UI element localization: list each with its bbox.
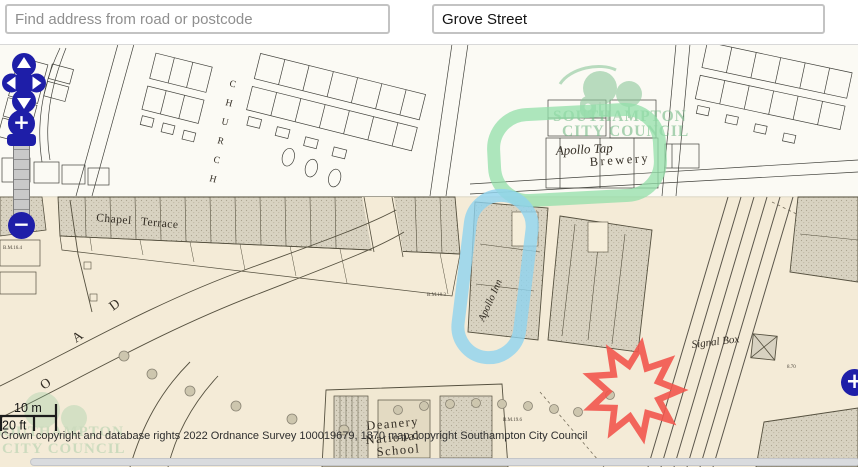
benchmark-label: B.M.19.6 <box>503 418 523 423</box>
road-input[interactable] <box>432 4 825 34</box>
attribution-text: Crown copyright and database rights 2022… <box>1 430 858 442</box>
zoom-slider-handle[interactable] <box>7 134 36 146</box>
benchmark-label: B.M.10.3 <box>427 293 447 298</box>
map-canvas[interactable]: C H U R C H <box>0 44 858 467</box>
benchmark-label: B.M.16.4 <box>3 246 23 251</box>
map-tile-modern <box>0 44 858 197</box>
benchmark-label: 8.70 <box>787 365 796 370</box>
zoom-slider-track[interactable] <box>13 139 30 217</box>
scale-metric-label: 10 m <box>14 401 42 415</box>
signal-box-symbol <box>751 334 777 360</box>
pan-control[interactable] <box>2 52 46 114</box>
zoom-out-button[interactable]: − <box>8 212 35 239</box>
address-search-input[interactable] <box>5 4 390 34</box>
search-bar <box>0 0 858 45</box>
zoom-in-button[interactable]: + <box>8 110 35 137</box>
pan-rosette-icon <box>2 52 46 114</box>
map-viewport[interactable]: C H U R C H <box>0 44 858 467</box>
watermark-line2: CITY COUNCIL <box>2 441 126 457</box>
map-app: C H U R C H <box>0 0 858 467</box>
horizontal-scrollbar-thumb[interactable] <box>30 458 858 466</box>
watermark-line2: CITY COUNCIL <box>562 123 689 140</box>
